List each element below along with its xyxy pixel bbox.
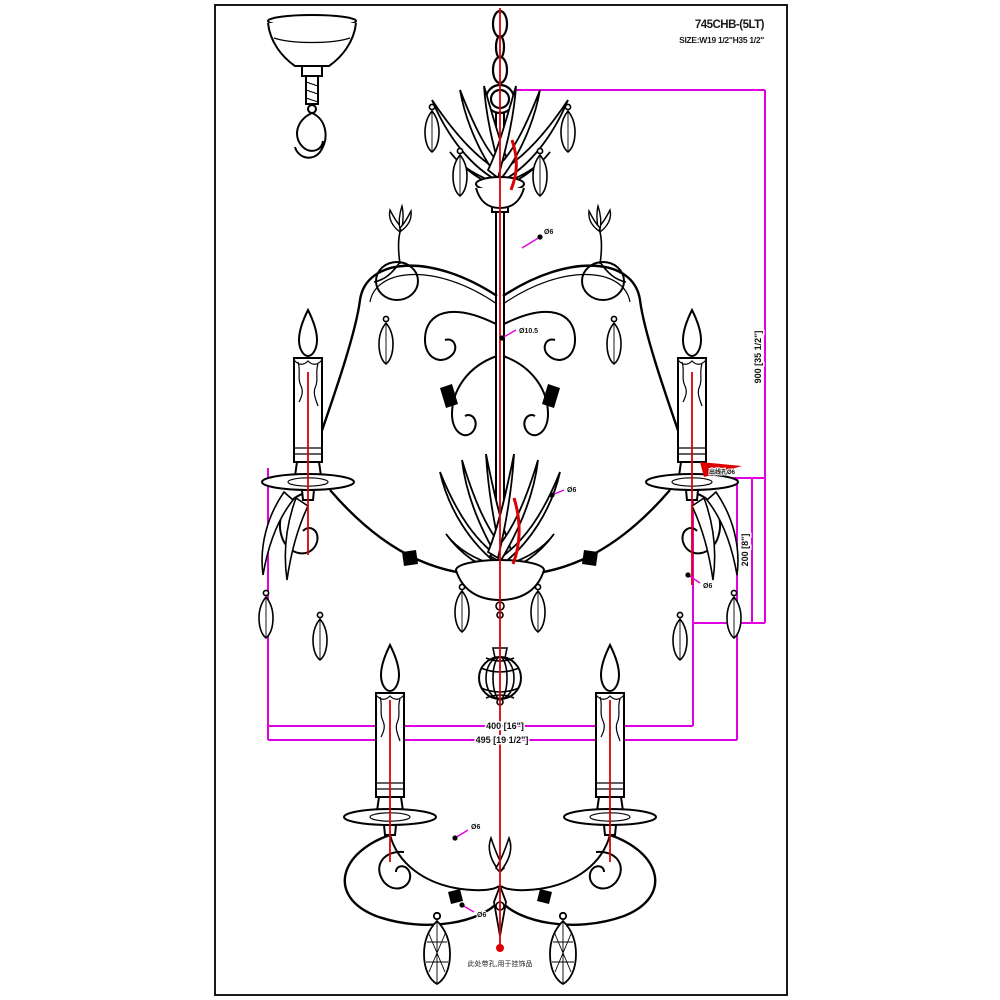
size-label: SIZE:W19 1/2"H35 1/2" <box>679 35 764 45</box>
annotation-a4: Ø6 <box>703 583 712 590</box>
bottom-hanging-hole-marker <box>496 944 504 952</box>
annotation-a6: Ø6 <box>477 912 486 919</box>
dim-text-spread-outer: 495 [19 1/2"] <box>476 735 529 745</box>
chandelier-drawing-canvas: Ø6 Ø10.5 Ø6 Ø6 Ø6 Ø6 出线孔Ø6 400 [16"] 495… <box>0 0 1000 1000</box>
annotation-wire-outlet: 出线孔Ø6 <box>709 468 736 476</box>
bottom-note: 此处带孔,用于挂饰品 <box>468 959 533 968</box>
dim-text-spread-inner: 400 [16"] <box>486 721 524 731</box>
dim-text-overall-height: 900 [35 1/2"] <box>753 331 763 384</box>
technical-drawing-page: Ø6 Ø10.5 Ø6 Ø6 Ø6 Ø6 出线孔Ø6 400 [16"] 495… <box>0 0 1000 1000</box>
dim-text-lower-height: 200 [8"] <box>740 534 750 567</box>
annotation-a5: Ø6 <box>471 824 480 831</box>
annotation-a2: Ø10.5 <box>519 328 538 335</box>
model-number: 745CHB-(5LT) <box>695 19 765 31</box>
annotation-a3: Ø6 <box>567 487 576 494</box>
annotation-a1: Ø6 <box>544 229 553 236</box>
